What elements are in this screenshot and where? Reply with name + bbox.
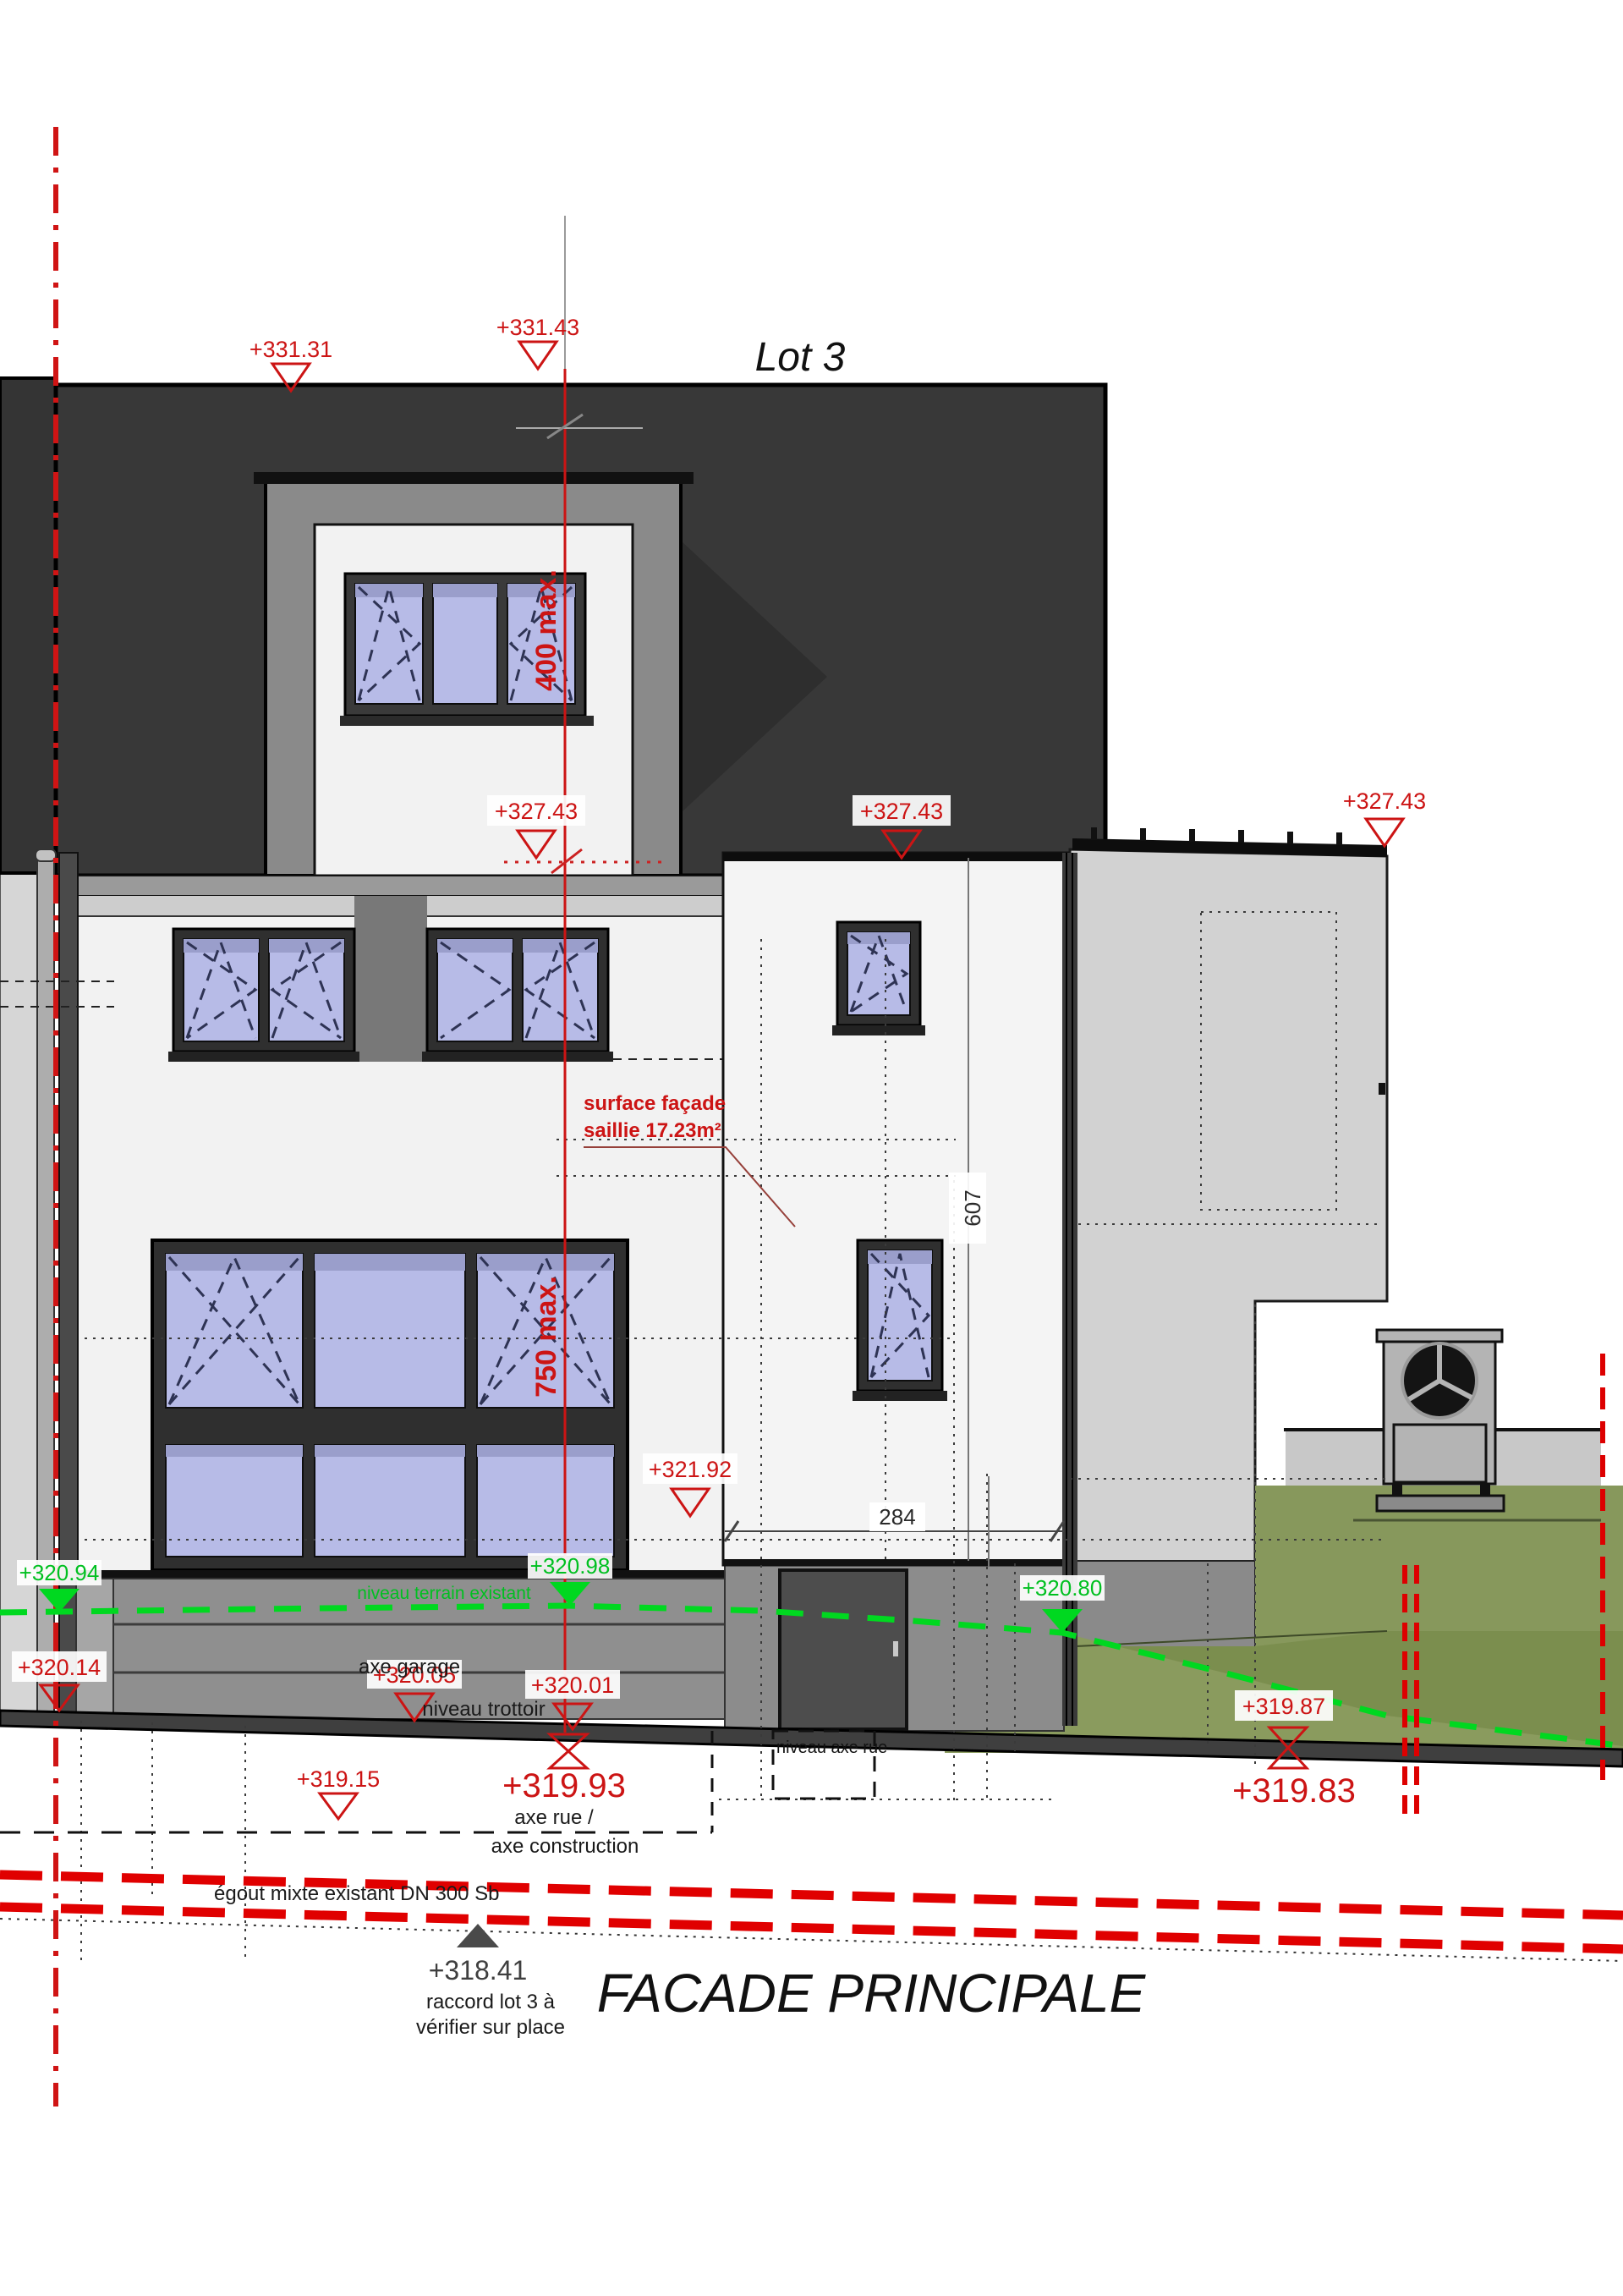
- window-pane: [184, 939, 259, 1041]
- level-319-83: +319.83: [1232, 1772, 1356, 1810]
- heat-pump-cap: [1377, 1330, 1502, 1342]
- pane-shadow: [166, 1445, 303, 1457]
- dim-window-max: 750 max.: [530, 1276, 562, 1398]
- pane-shadow: [477, 1445, 614, 1457]
- neighbour-wall: [0, 871, 39, 1712]
- level-319-87: +319.87: [1242, 1694, 1325, 1719]
- connection-triangle-icon: [457, 1924, 499, 1947]
- level-320-80: +320.80: [1023, 1575, 1103, 1601]
- pane-shadow: [355, 584, 423, 597]
- level-320-14: +320.14: [18, 1655, 101, 1680]
- note-axe-rue-1: axe rue /: [514, 1806, 594, 1829]
- dim-dormer-max: 400 max.: [530, 569, 562, 691]
- window-pier: [354, 896, 427, 1062]
- pane-shadow: [315, 1254, 465, 1271]
- level-331-31: +331.31: [249, 337, 332, 362]
- heat-pump-base: [1377, 1496, 1504, 1511]
- saillie-roof-edge: [723, 853, 1068, 861]
- pane-shadow: [433, 584, 497, 597]
- level-327-43-a: +327.43: [495, 799, 578, 824]
- drawing-title: FACADE PRINCIPALE: [597, 1963, 1147, 2024]
- window-pane: [868, 1250, 932, 1381]
- heat-pump-panel: [1394, 1425, 1486, 1482]
- note-trottoir: niveau trottoir: [422, 1698, 545, 1721]
- level-327-43-c: +327.43: [1343, 788, 1426, 814]
- right-wing-base: [1076, 1561, 1255, 1650]
- railing-post: [1091, 827, 1097, 840]
- railing-post: [1336, 832, 1342, 845]
- window-pane: [269, 939, 344, 1041]
- dormer-roof-edge: [254, 472, 694, 484]
- window-pane: [847, 932, 910, 1015]
- level-320-98: +320.98: [530, 1553, 611, 1579]
- note-egout: égout mixte existant DN 300 Sb: [214, 1882, 500, 1905]
- window-pane: [523, 939, 598, 1041]
- dormer-sill: [340, 716, 594, 726]
- railing-post: [1238, 830, 1244, 843]
- door-handle: [893, 1641, 898, 1656]
- saillie-bottom-edge: [723, 1559, 1068, 1565]
- note-niveau-axe-rue: niveau axe rue: [776, 1738, 887, 1757]
- window-sill: [168, 1052, 359, 1062]
- gutter: [56, 876, 741, 896]
- window-sill: [832, 1025, 925, 1035]
- level-triangle: [320, 1793, 357, 1819]
- dim-saillie-height: 607: [960, 1189, 985, 1226]
- railing-post: [1189, 829, 1195, 842]
- downpipe-cap: [36, 849, 56, 861]
- note-surface-1: surface façade: [584, 1092, 726, 1115]
- level-320-01: +320.01: [531, 1673, 614, 1698]
- downpipe: [37, 856, 54, 1716]
- note-raccord-1: raccord lot 3 à: [426, 1991, 556, 2013]
- level-320-94: +320.94: [19, 1560, 100, 1585]
- level-331-43: +331.43: [496, 315, 579, 340]
- pane-shadow: [477, 1254, 614, 1271]
- neighbour-roof: [0, 378, 56, 873]
- note-surface-2: saillie 17.23m²: [584, 1119, 721, 1142]
- level-318-41: +318.41: [429, 1955, 528, 1986]
- benchmark-bottom: [550, 1751, 587, 1768]
- note-axe-rue-2: axe construction: [491, 1835, 639, 1858]
- dim-saillie-width: 284: [879, 1504, 915, 1530]
- note-terrain: niveau terrain existant: [357, 1584, 531, 1603]
- level-triangle: [1366, 819, 1403, 846]
- window-sill: [853, 1391, 947, 1401]
- pane-shadow: [166, 1254, 303, 1271]
- garage-lintel: [76, 1570, 727, 1579]
- railing-post: [1140, 828, 1146, 841]
- garage-pier: [76, 1579, 113, 1719]
- facade-principale-svg: 607 284 400 max. 750 max. +320.94 +320.9…: [0, 0, 1623, 2296]
- level-triangle: [519, 342, 557, 369]
- door-handle-mark: [1379, 1083, 1385, 1095]
- window-sill: [422, 1052, 613, 1062]
- level-319-15: +319.15: [297, 1766, 380, 1792]
- railing-post: [1287, 832, 1293, 844]
- window-pane: [437, 939, 513, 1041]
- note-axe-garage: axe garage: [359, 1656, 460, 1678]
- pane-shadow: [437, 939, 513, 953]
- note-raccord-2: vérifier sur place: [416, 2016, 565, 2039]
- elevation-drawing: 607 284 400 max. 750 max. +320.94 +320.9…: [0, 0, 1623, 2296]
- lot-title: Lot 3: [755, 335, 846, 380]
- level-327-43-b: +327.43: [860, 799, 943, 824]
- level-321-92: +321.92: [649, 1457, 732, 1482]
- pane-shadow: [315, 1445, 465, 1457]
- dormer-pane-center: [433, 584, 497, 704]
- dormer-pane-left: [355, 584, 423, 704]
- window-pane: [315, 1254, 465, 1408]
- level-319-93: +319.93: [502, 1767, 626, 1804]
- entrance-door: [780, 1570, 907, 1729]
